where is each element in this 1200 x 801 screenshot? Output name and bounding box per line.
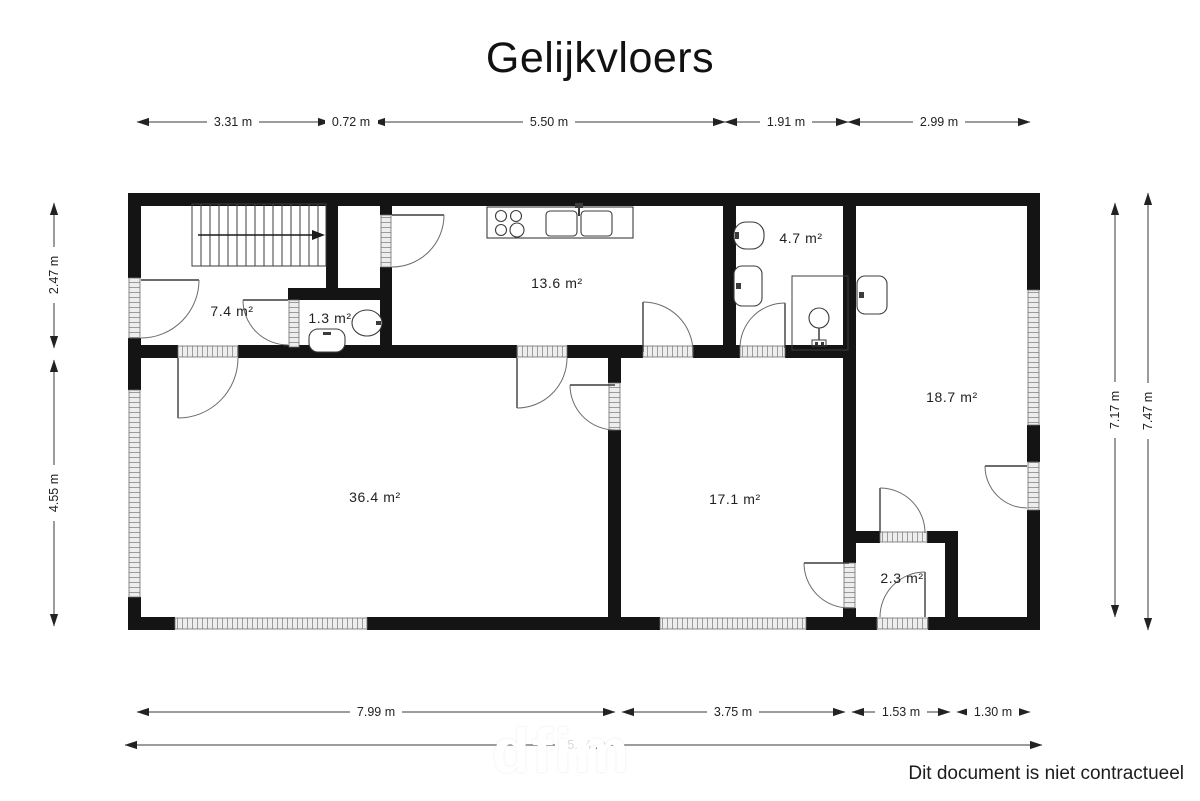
dim-label: 7.99 m — [357, 705, 395, 719]
door-threshold-vestibule-garage — [880, 532, 927, 542]
room-label: 1.3 m² — [308, 310, 351, 326]
kitchen-fixtures — [487, 203, 633, 238]
door-threshold-kitchen-living — [517, 346, 567, 357]
dim-label: 0.72 m — [332, 115, 370, 129]
door-bathroom — [740, 303, 785, 348]
disclaimer-text: Dit document is niet contractueel — [908, 763, 1184, 785]
room-label: 2.3 m² — [880, 570, 923, 586]
room-label: 36.4 m² — [349, 489, 401, 505]
room-label: 4.7 m² — [779, 230, 822, 246]
door-threshold-kitchen-hall — [381, 215, 391, 267]
door-threshold-room-vestibule — [844, 563, 855, 608]
door-threshold-vestibule-south — [877, 618, 928, 629]
door-garage-east — [985, 466, 1027, 508]
door-kitchen-living — [517, 358, 567, 408]
dim-label: 4.55 m — [47, 474, 61, 512]
door-threshold-hall-living — [178, 346, 238, 357]
watermark-logo: dfim — [492, 716, 712, 786]
door-hall-west — [141, 280, 199, 338]
window-garage-east — [1028, 290, 1039, 425]
windows-and-thresholds — [129, 215, 1039, 629]
room-label: 18.7 m² — [926, 389, 978, 405]
garage-fixtures — [857, 276, 887, 314]
watermark-blob — [566, 737, 592, 754]
shower-icon — [792, 276, 848, 350]
door-threshold-wc — [289, 300, 299, 347]
dim-label: 2.47 m — [47, 256, 61, 294]
dim-label: 1.53 m — [882, 705, 920, 719]
walls — [128, 193, 1040, 630]
door-hall-living — [178, 358, 238, 418]
room-label: 17.1 m² — [709, 491, 761, 507]
door-living-room — [570, 385, 615, 430]
dim-label: 3.75 m — [714, 705, 752, 719]
room-label: 7.4 m² — [210, 303, 253, 319]
door-room-vestibule — [804, 563, 849, 608]
door-threshold-hall-west — [129, 278, 140, 338]
floor-plan-drawing: 7.4 m² 1.3 m² 13.6 m² 4.7 m² 18.7 m² 36.… — [0, 0, 1200, 801]
dim-label: 1.30 m — [974, 705, 1012, 719]
staircase-icon — [192, 204, 326, 266]
window-living-west — [129, 390, 140, 597]
dim-label: 5.50 m — [530, 115, 568, 129]
dim-label: 7.47 m — [1141, 392, 1155, 430]
door-swings — [141, 215, 1027, 617]
door-vestibule-garage — [880, 488, 925, 533]
door-threshold-garage-east — [1028, 462, 1039, 510]
dim-label: 7.17 m — [1108, 391, 1122, 429]
door-threshold-living-room — [609, 383, 620, 430]
dim-label: 3.31 m — [214, 115, 252, 129]
door-kitchen-hall — [392, 215, 444, 267]
door-kitchen-room — [643, 302, 693, 352]
floorplan-page: Gelijkvloers — [0, 0, 1200, 801]
dim-label: 2.99 m — [920, 115, 958, 129]
window-room-south — [660, 618, 806, 629]
window-living-south — [175, 618, 367, 629]
door-threshold-bathroom — [740, 346, 785, 357]
door-threshold-kitchen-room — [643, 346, 693, 357]
room-label: 13.6 m² — [531, 275, 583, 291]
dim-label: 1.91 m — [767, 115, 805, 129]
